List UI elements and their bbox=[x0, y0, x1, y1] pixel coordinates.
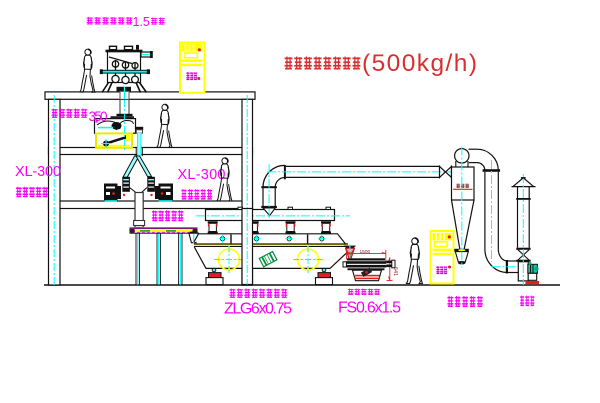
svg-text:1.5: 1.5 bbox=[133, 15, 150, 29]
svg-text:XL-300: XL-300 bbox=[15, 164, 61, 180]
svg-text:350: 350 bbox=[89, 109, 108, 124]
svg-text:1500: 1500 bbox=[360, 249, 371, 255]
svg-text:541: 541 bbox=[392, 267, 398, 276]
svg-text:ZLG6x0.75: ZLG6x0.75 bbox=[224, 301, 292, 318]
svg-text:XL-300: XL-300 bbox=[178, 167, 226, 183]
svg-text:(500kg/h): (500kg/h) bbox=[362, 50, 477, 77]
svg-text:FS0.6x1.5: FS0.6x1.5 bbox=[338, 300, 401, 317]
